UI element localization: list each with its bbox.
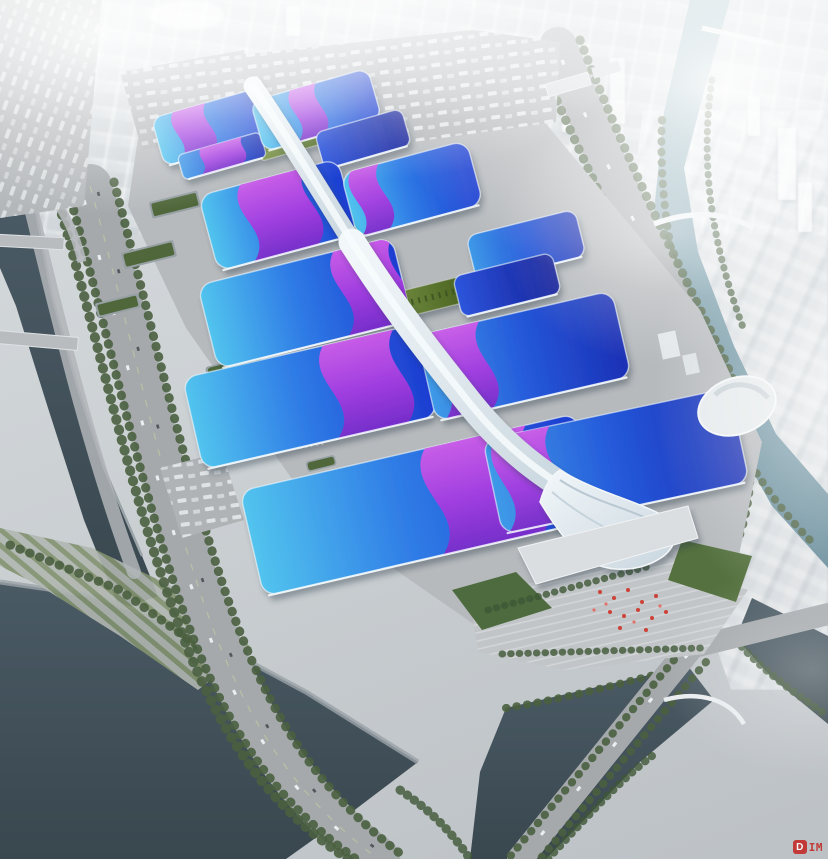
aerial-city-render: D IM: [0, 0, 828, 859]
watermark-logo: D: [793, 840, 807, 854]
watermark-text: IM: [809, 841, 823, 854]
scene-svg: [0, 0, 828, 859]
watermark: D IM: [793, 840, 823, 854]
south-grove: [400, 790, 470, 859]
